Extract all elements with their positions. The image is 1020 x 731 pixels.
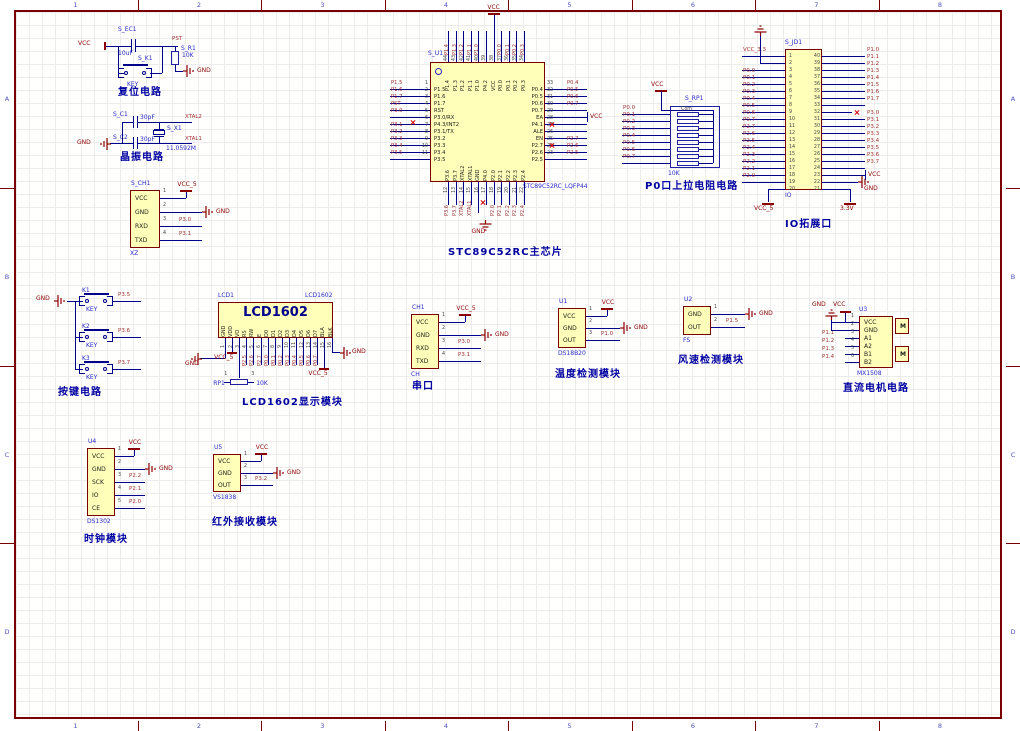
net-label: P1.2 — [867, 62, 879, 68]
vcc-power-label: VCC — [78, 41, 90, 47]
vcc-bar — [128, 448, 140, 450]
pin-number: 38 — [810, 69, 820, 74]
pin-number: 4 — [851, 339, 854, 344]
key-contact — [103, 299, 107, 303]
pin-name: P0.0 — [499, 65, 504, 91]
pin-number: 4 — [412, 103, 428, 108]
pin-number: 1 — [244, 453, 247, 458]
wire — [390, 159, 430, 160]
pin-name: TXD — [135, 238, 147, 244]
gnd-label: GND — [77, 140, 91, 146]
pin-name: VO — [236, 313, 241, 337]
designator: S_JD1 — [785, 40, 802, 46]
net-label: P2.2 — [506, 194, 511, 216]
zone-letter: B — [1008, 272, 1018, 282]
pin-name: GND — [222, 313, 227, 337]
pin-name: SCK — [92, 480, 104, 486]
designator: S_CH1 — [131, 181, 150, 187]
net-label: P0.0 — [623, 106, 635, 112]
net-label: P3.5 — [118, 293, 130, 299]
potentiometer — [230, 379, 248, 385]
net-label: P0.4 — [567, 81, 578, 86]
key-name: KEY — [86, 375, 97, 381]
pin-number: 19 — [789, 181, 795, 186]
pin-name: P4.2 — [484, 65, 489, 91]
wire — [332, 338, 333, 352]
net-label: P1.0 — [867, 48, 879, 54]
net-label: P0.2 — [743, 83, 755, 89]
caption-mcu: STC89C52RC主芯片 — [448, 248, 563, 258]
wire — [822, 168, 865, 169]
caption-io: IO拓展口 — [785, 220, 832, 230]
key-bar — [84, 293, 109, 295]
net-label: P0.6 — [307, 349, 312, 366]
net-label: P0.3 — [286, 349, 291, 366]
pin-number: 42 — [461, 52, 466, 61]
wire — [160, 198, 186, 199]
designator: LCD1 — [218, 293, 234, 299]
wire — [760, 34, 761, 63]
zone-letter: D — [1008, 627, 1018, 637]
pin-number: 11 — [412, 152, 428, 157]
wire — [486, 182, 487, 205]
caption-temp: 温度检测模块 — [555, 370, 621, 380]
wire — [831, 322, 845, 323]
power-label: VCC — [480, 5, 508, 11]
pin-name: A1 — [864, 336, 872, 342]
net-label: P0.3 — [623, 127, 635, 133]
pin-number: 16 — [789, 160, 795, 165]
zone-tick — [385, 721, 386, 731]
wire — [742, 56, 785, 57]
pin-name: VCC — [218, 459, 230, 465]
wire — [713, 110, 714, 163]
net-label: P2.7 — [567, 137, 578, 142]
pin-name: D2 — [279, 313, 284, 337]
pin-name: VCC — [416, 320, 428, 326]
pin-number: 5 — [118, 500, 121, 505]
pin-number: 27 — [810, 146, 820, 151]
key-contact — [142, 71, 146, 75]
pin-number: 25 — [810, 160, 820, 165]
crystal-plate — [154, 136, 164, 137]
pin-name: TXD — [416, 359, 428, 365]
pin-name: VCC — [864, 320, 876, 326]
net-label: P2.3 — [743, 153, 755, 159]
net-label: P1.1 — [822, 331, 834, 337]
zone-tick — [755, 721, 756, 731]
designator: CH1 — [412, 305, 425, 311]
power-label: VCC_5 — [449, 306, 483, 312]
net-label: P3.0 — [458, 340, 470, 346]
zone-tick — [879, 721, 880, 731]
wire — [186, 192, 187, 198]
wire — [822, 84, 865, 85]
wire — [822, 182, 858, 183]
zone-tick — [261, 0, 262, 10]
pin-number: 4 — [789, 76, 792, 81]
net-label: P3.3 — [391, 137, 402, 142]
net-label: P1.6 — [391, 88, 402, 93]
pin-name: P0.3 — [522, 65, 527, 91]
zone-letter: A — [1008, 94, 1018, 104]
pin-number: 38 — [491, 52, 496, 61]
pin-number: 33 — [547, 82, 553, 87]
pin-number: 5 — [789, 83, 792, 88]
zone-number: 2 — [138, 721, 261, 731]
net-label: P1.0 — [601, 332, 613, 338]
gnd-symbol — [145, 462, 158, 476]
gnd-symbol — [202, 205, 215, 219]
wire — [160, 212, 202, 213]
pin-name: D5 — [300, 313, 305, 337]
cap-value: 10uF — [118, 51, 133, 57]
net-label: P2.5 — [743, 139, 755, 145]
net-label: P2.0 — [491, 194, 496, 216]
pin-number: 30 — [547, 103, 553, 108]
pin-name: P4.0 — [484, 155, 489, 181]
crystal-body — [153, 130, 165, 135]
caption-serial: 串口 — [412, 382, 434, 392]
net-label: P3.2 — [391, 130, 402, 135]
pin-number: 9 — [412, 138, 428, 143]
wire — [822, 77, 865, 78]
component-body[interactable]: P1.5P1.6P1.7RSTP3.0/RXP4.3/INT2P3.1/TXP3… — [430, 62, 545, 182]
pin-name: P1.6 — [434, 95, 445, 100]
net-label: P3.5 — [867, 146, 879, 152]
pin-number: 10 — [412, 145, 428, 150]
pin-number: 1 — [412, 82, 428, 87]
part-name: MX1508 — [857, 371, 882, 377]
resistor — [677, 119, 699, 124]
pin-number: 3 — [163, 218, 166, 223]
pin-name: RS — [243, 313, 248, 337]
pin-name: B1 — [864, 352, 872, 358]
pin-number: 31 — [810, 118, 820, 123]
wire — [115, 495, 145, 496]
zone-letter: C — [1008, 450, 1018, 460]
pin-name: RXD — [135, 224, 148, 230]
wire — [711, 327, 745, 328]
pin-name: GND — [688, 312, 702, 318]
part-name: FS — [683, 338, 690, 344]
pin-name: P3.2 — [434, 137, 445, 142]
pin-number: 4 — [163, 232, 166, 237]
wire — [478, 182, 479, 213]
pin-number: 41 — [468, 52, 473, 61]
net-label: P0.1 — [623, 113, 635, 119]
gnd-symbol — [620, 321, 633, 335]
wire — [232, 338, 233, 352]
vcc-bar — [840, 311, 851, 313]
pin-name: P3.4 — [434, 151, 445, 156]
pin-name: GND — [135, 210, 149, 216]
wire — [822, 70, 865, 71]
resistor — [677, 140, 699, 145]
zone-tick — [0, 543, 14, 544]
c1-value: 30pF — [140, 115, 155, 121]
wire — [324, 338, 325, 368]
pin-number: 1 — [789, 55, 792, 60]
wire — [586, 328, 620, 329]
wire — [115, 469, 145, 470]
zone-tick — [508, 721, 509, 731]
component-body[interactable]: 1234567891011121314151617181920403938373… — [785, 49, 822, 190]
net-label: P2.6 — [250, 349, 255, 366]
zone-tick — [138, 721, 139, 731]
wire — [241, 461, 261, 462]
wire — [67, 301, 75, 302]
x1-value: 11.0592M — [166, 146, 196, 152]
motor-box[interactable]: M — [895, 318, 909, 334]
pin-number: 21 — [810, 188, 820, 193]
vcc-bar — [180, 190, 192, 192]
pin-name: P0.2 — [514, 65, 519, 91]
pin-name: P2.7 — [499, 144, 543, 149]
pin-number: 4 — [442, 353, 445, 358]
pin-name: ALE — [499, 130, 543, 135]
pin-number: 36 — [810, 83, 820, 88]
part-name: DS1302 — [87, 519, 111, 525]
pin-name: VCC — [135, 196, 147, 202]
caption-crystal: 晶振电路 — [120, 153, 164, 163]
net-label: P2.4 — [743, 146, 755, 152]
pin-name: P2.6 — [499, 151, 543, 156]
component-body[interactable]: VCCGNDA1A2B1B2 — [859, 316, 893, 368]
wire — [699, 135, 713, 136]
pin-number: 2 — [118, 461, 121, 466]
net-label: XTAL2 — [460, 194, 465, 216]
part-name: DS18B20 — [558, 351, 586, 357]
power-label: VCC — [590, 114, 602, 120]
net-label: P3.6 — [118, 329, 130, 335]
pin-name: EA — [499, 116, 543, 121]
pot-pin: 3 — [251, 373, 254, 378]
wire — [137, 143, 192, 144]
pin-name: GND — [416, 333, 430, 339]
component-body[interactable]: VCCGNDOUT — [558, 308, 586, 348]
zone-tick — [1006, 188, 1020, 189]
net-label: P2.2 — [129, 474, 141, 480]
designator: U3 — [859, 307, 867, 313]
caption-wind: 风速检测模块 — [678, 356, 744, 366]
caption-lcd: LCD1602显示模块 — [242, 398, 343, 408]
net-label: P0.6 — [623, 148, 635, 154]
net-label: P0.7 — [567, 102, 578, 107]
gnd-label: GND — [634, 325, 648, 331]
pin-number: 39 — [810, 62, 820, 67]
pin-name: RXD — [416, 346, 429, 352]
net-label: P3.2 — [255, 477, 267, 483]
designator: U2 — [684, 297, 692, 303]
wire — [75, 301, 76, 369]
pin-name: P1.0 — [476, 65, 481, 91]
pin-name: P2.0 — [492, 155, 497, 181]
error-marker-icon — [549, 142, 555, 148]
pin-number: 30 — [810, 125, 820, 130]
pin-number: 23 — [547, 152, 553, 157]
net-label: P1.5 — [726, 319, 738, 325]
pin-number: 3 — [589, 332, 592, 337]
net-label: PST — [391, 102, 401, 107]
gnd-label: GND — [185, 361, 199, 367]
pin-number: 2 — [714, 319, 717, 324]
wire — [261, 455, 262, 461]
wire — [845, 362, 859, 363]
wire — [822, 63, 865, 64]
component-body[interactable]: VCCGNDOUT — [213, 454, 241, 492]
pin-number: 1 — [589, 308, 592, 313]
caption-motor: 直流电机电路 — [843, 384, 909, 394]
net-label: P0.1 — [743, 76, 755, 82]
net-label-xtal1: XTAL1 — [185, 137, 202, 143]
pin-number: 8 — [412, 131, 428, 136]
wire — [661, 110, 670, 111]
zone-number: 7 — [755, 0, 878, 10]
wire — [622, 163, 670, 164]
caption-pullup: P0口上拉电阻电路 — [645, 182, 738, 192]
wire — [115, 482, 145, 483]
pin-number: 5 — [412, 110, 428, 115]
wire — [699, 128, 713, 129]
wire — [699, 142, 713, 143]
net-label: P1.5 — [867, 83, 879, 89]
net-label-xtal2: XTAL2 — [185, 115, 202, 121]
pin-number: 9 — [789, 111, 792, 116]
pin-number: 2 — [851, 323, 854, 328]
designator: U5 — [214, 445, 222, 451]
wire — [661, 91, 662, 110]
pot-value: 10K — [256, 381, 268, 387]
part-name: IO — [785, 193, 792, 199]
component-body[interactable]: GNDOUT — [683, 306, 711, 335]
resistor — [677, 161, 699, 166]
pin-name: P3.3 — [434, 144, 445, 149]
pin-number: 40 — [476, 52, 481, 61]
component-body[interactable]: VCCGNDSCKIOCE — [87, 448, 115, 516]
pin-name: P3.5 — [434, 158, 445, 163]
vcc-bar — [255, 453, 267, 455]
pin-number: 3 — [118, 474, 121, 479]
zone-tick — [1006, 543, 1020, 544]
wire — [134, 450, 135, 456]
wire — [175, 71, 183, 72]
pin-name: P4.1 — [499, 123, 543, 128]
resistor — [171, 51, 179, 65]
net-label: P0.0 — [265, 349, 270, 366]
net-label: P1.4 — [867, 76, 879, 82]
pin-name: GND — [92, 467, 106, 473]
net-label: P3.6 — [445, 194, 450, 216]
vcc-bar — [601, 308, 613, 310]
zone-tick — [632, 721, 633, 731]
net-label: P2.1 — [129, 487, 141, 493]
net-label: P2.0 — [743, 174, 755, 180]
gnd-symbol — [273, 466, 286, 480]
wire — [822, 126, 865, 127]
net-label: P0.7 — [743, 118, 755, 124]
wire — [822, 98, 865, 99]
wire — [699, 163, 713, 164]
motor-box[interactable]: M — [895, 346, 909, 362]
part-name: LCD1602 — [305, 293, 332, 299]
zone-number: 3 — [261, 721, 384, 731]
component-body[interactable]: VCCGNDRXDTXD — [411, 314, 439, 369]
zone-tick — [385, 0, 386, 10]
power-label: VCC — [591, 300, 625, 306]
pin-number: 35 — [810, 90, 820, 95]
pin-name: P3.6 — [446, 155, 451, 181]
pin-name: B2 — [864, 360, 872, 366]
wire — [699, 121, 713, 122]
pin-name: XTAL1 — [469, 155, 474, 181]
motor-label: M — [900, 352, 906, 358]
wire — [115, 508, 145, 509]
capacitor-plate — [135, 39, 136, 52]
capacitor-plate — [133, 137, 134, 149]
wire — [332, 352, 341, 353]
wire — [822, 189, 850, 190]
net-label: VCC_3.3 — [743, 48, 766, 54]
vcc-label: VCC — [651, 82, 663, 88]
net-label-pst: PST — [172, 37, 182, 43]
pin-name: RW — [250, 313, 255, 337]
net-label: P2.6 — [743, 132, 755, 138]
key-contact — [85, 367, 89, 371]
net-label: P3.1 — [391, 123, 402, 128]
zone-tick — [0, 188, 14, 189]
component-body[interactable]: VCCGNDRXDTXD — [130, 190, 160, 248]
net-label: P2.1 — [498, 194, 503, 216]
wire — [768, 189, 785, 190]
pin-number: 2 — [789, 62, 792, 67]
wire — [241, 473, 273, 474]
designator: S_RP1 — [685, 96, 703, 102]
pin-name: VCC — [563, 314, 575, 320]
pin-number: 29 — [547, 110, 553, 115]
gnd-label: GND — [352, 349, 366, 355]
wire — [159, 122, 160, 129]
wire — [137, 122, 192, 123]
pin-name: XTAL2 — [461, 155, 466, 181]
cap-ref: S_EC1 — [118, 27, 137, 33]
pin-number: 39 — [483, 52, 488, 61]
gnd-symbol — [98, 137, 111, 151]
key-ref: S_K1 — [138, 56, 153, 62]
power-label: VCC_5 — [170, 182, 204, 188]
pin-number: 2 — [412, 89, 428, 94]
pin-name: VCC — [92, 454, 104, 460]
gnd-label: GND — [864, 186, 878, 192]
wire — [822, 147, 865, 148]
resistor — [677, 126, 699, 131]
power-label: VCC — [118, 440, 152, 446]
pin-number: 5 — [851, 347, 854, 352]
pin-name: P3.1/TX — [434, 130, 454, 135]
part-name: VS1838 — [213, 495, 236, 501]
pin-number: 26 — [547, 131, 553, 136]
pin-name: P0.5 — [499, 95, 543, 100]
net-label: P3.6 — [867, 153, 879, 159]
pin-name: D7 — [314, 313, 319, 337]
pin-name: P1.4 — [446, 65, 451, 91]
net-label: P3.3 — [867, 132, 879, 138]
pin-number: 3 — [789, 69, 792, 74]
gnd-label: GND — [216, 209, 230, 215]
power-label: VCC — [245, 445, 279, 451]
net-label: P3.0 — [391, 109, 402, 114]
wire — [135, 46, 178, 47]
